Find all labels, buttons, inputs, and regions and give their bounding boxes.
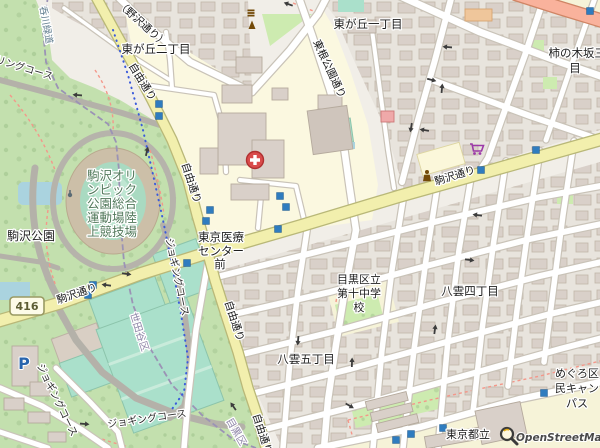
svg-text:第十中学: 第十中学 [337,286,381,300]
bus-stop-icon [156,101,163,108]
bus-stop-icon [587,8,594,15]
label-komazawa-park: 駒沢公園 [7,229,55,243]
label-yakumo-4: 八雲四丁目 [441,284,499,298]
svg-text:民キャン: 民キャン [555,382,599,395]
bus-stop-icon [203,218,210,225]
parking-icon: P [18,354,30,373]
bus-stop-icon [275,226,282,233]
bus-stop-icon [184,260,191,267]
label-kakinokizaka-2: 目 [569,61,581,75]
svg-text:運動場陸: 運動場陸 [87,210,137,225]
svg-text:めぐろ区: めぐろ区 [555,367,599,380]
bus-stop-icon [283,204,290,211]
map-canvas[interactable]: P 416 東が丘二丁目 東が丘一丁目 柿の木坂三丁 目 駒沢公園 駒沢オリ ン… [0,0,600,448]
bus-stop-icon [533,147,540,154]
svg-text:公園総合: 公園総合 [87,196,138,211]
svg-text:校: 校 [354,300,365,314]
hospital-icon [247,152,264,169]
label-tokyo-toritsu: 東京都立 [446,427,490,441]
svg-text:パス: パス [566,397,588,410]
svg-text:416: 416 [16,300,39,313]
bus-stop-icon [393,437,400,444]
svg-text:ンピック: ンピック [87,182,137,197]
bus-stop-icon [478,167,485,174]
historic-memorial-icon [248,10,255,17]
svg-text:東京医療: 東京医療 [198,230,244,244]
bus-stop-icon [408,431,415,438]
svg-text:OpenStreetMap: OpenStreetMap [516,432,600,444]
svg-text:目黒区立: 目黒区立 [337,272,381,286]
svg-text:駒沢オリ: 駒沢オリ [87,168,137,183]
label-kakinokizaka-1: 柿の木坂三丁 [549,46,600,60]
route-shield-416: 416 [10,297,44,315]
svg-text:上競技場: 上競技場 [87,224,137,239]
bus-stop-icon [207,207,214,214]
svg-text:P: P [18,354,30,373]
label-stadium: 駒沢オリ ンピック 公園総合 運動場陸 上競技場 [87,168,138,239]
bus-stop-icon [277,193,284,200]
label-higashigaoka-1: 東が丘一丁目 [334,17,403,31]
svg-text:センター: センター [198,244,244,258]
bus-stop-icon [541,390,548,397]
svg-text:前: 前 [214,257,226,271]
bus-stop-icon [156,113,163,120]
label-yakumo-5: 八雲五丁目 [277,352,335,366]
